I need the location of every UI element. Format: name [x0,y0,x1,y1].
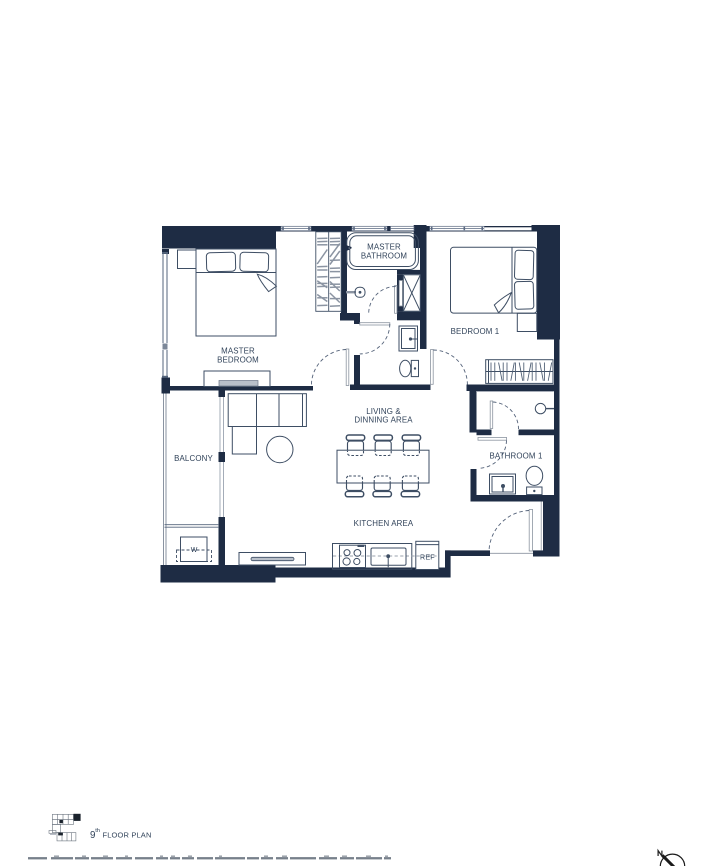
svg-text:BATHROOM: BATHROOM [361,251,407,260]
svg-text:KITCHEN AREA: KITCHEN AREA [354,519,414,528]
svg-text:BATHROOM 1: BATHROOM 1 [489,452,542,461]
svg-text:MASTER: MASTER [367,242,401,251]
svg-text:FLOOR PLAN: FLOOR PLAN [103,831,152,840]
svg-text:REF: REF [420,552,435,561]
svg-text:W: W [191,547,198,554]
svg-text:DINNING AREA: DINNING AREA [354,415,413,424]
svg-text:BEDROOM 1: BEDROOM 1 [451,327,500,336]
svg-text:th: th [95,828,100,834]
svg-text:BEDROOM: BEDROOM [217,355,259,364]
svg-text:MASTER: MASTER [221,347,255,356]
svg-text:BALCONY: BALCONY [174,454,213,463]
